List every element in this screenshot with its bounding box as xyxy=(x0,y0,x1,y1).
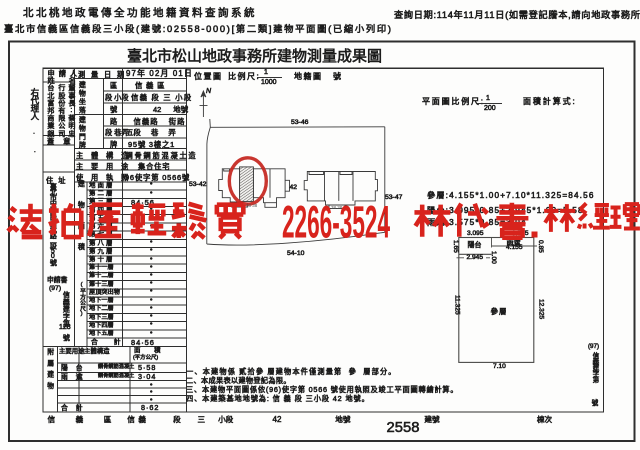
svg-text:2266-3524: 2266-3524 xyxy=(282,197,390,248)
